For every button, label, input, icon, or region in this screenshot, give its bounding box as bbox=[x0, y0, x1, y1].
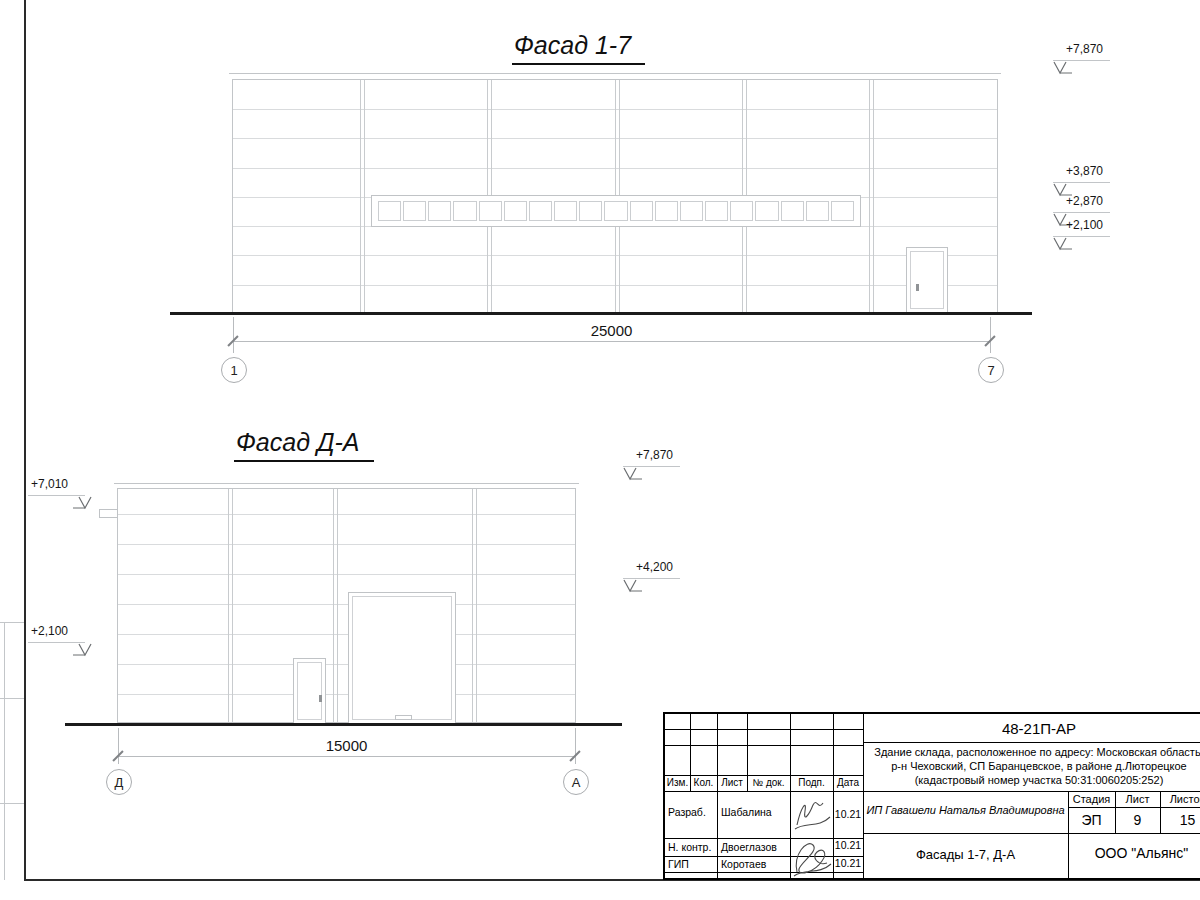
elevation-arrow-icon bbox=[72, 643, 92, 657]
sheet-frame-left bbox=[24, 0, 26, 881]
project-description-line3: (кадастровый номер участка 50:31:0060205… bbox=[863, 774, 1200, 786]
column-mullion bbox=[228, 489, 233, 722]
door-handle bbox=[319, 695, 322, 702]
sheet-label: Лист bbox=[1115, 793, 1160, 805]
panel-line bbox=[118, 604, 575, 605]
col-doc: № док. bbox=[747, 777, 790, 788]
window-pane bbox=[428, 201, 451, 221]
sheet-number: 9 bbox=[1115, 812, 1160, 828]
panel-line bbox=[118, 544, 575, 545]
dimension-line bbox=[233, 341, 990, 342]
column-mullion bbox=[472, 489, 477, 722]
window-band bbox=[371, 195, 861, 227]
row-role: Н. контр. bbox=[668, 841, 711, 853]
sheets-label: Листов bbox=[1160, 793, 1200, 805]
doc-number: 48-21П-АР bbox=[863, 720, 1200, 737]
row-name: Двоеглазов bbox=[721, 841, 777, 853]
window-pane bbox=[479, 201, 502, 221]
window-pane bbox=[705, 201, 728, 221]
row-date: 10.21 bbox=[833, 857, 863, 869]
window-pane bbox=[806, 201, 829, 221]
elevation-value: +7,010 bbox=[31, 477, 68, 491]
window-pane bbox=[453, 201, 476, 221]
stage-value: ЭП bbox=[1068, 812, 1115, 828]
window-pane bbox=[529, 201, 552, 221]
axis-label: Д bbox=[115, 775, 124, 790]
row-date: 10.21 bbox=[833, 808, 863, 820]
panel-line bbox=[118, 514, 575, 515]
column-mullion bbox=[360, 80, 365, 312]
column-mullion bbox=[869, 80, 874, 312]
panel-line bbox=[118, 574, 575, 575]
elevation-value: +7,870 bbox=[1066, 42, 1103, 56]
drawing-sheet: Фасад 1-7 25000 1 7 bbox=[0, 0, 1200, 900]
sheets-total: 15 bbox=[1160, 812, 1200, 828]
window-pane bbox=[504, 201, 527, 221]
dimension-value: 25000 bbox=[233, 322, 990, 339]
row-role: Разраб. bbox=[668, 806, 706, 818]
window-pane bbox=[403, 201, 426, 221]
gate-leaf bbox=[352, 596, 452, 720]
titleblock-line bbox=[863, 833, 1200, 834]
titleblock-line bbox=[665, 791, 1200, 792]
window-panes bbox=[378, 201, 854, 221]
signature-scribble bbox=[792, 795, 832, 835]
margin-cell-line bbox=[4, 622, 5, 880]
sheet-content-title: Фасады 1-7, Д-А bbox=[863, 847, 1068, 862]
axis-label: 1 bbox=[230, 363, 237, 378]
window-pane bbox=[680, 201, 703, 221]
titleblock-line bbox=[1068, 807, 1200, 808]
dimension-value: 15000 bbox=[118, 737, 575, 754]
panel-line bbox=[118, 694, 575, 695]
sectional-gate bbox=[348, 592, 456, 724]
titleblock-line bbox=[665, 729, 863, 730]
titleblock-line bbox=[665, 745, 863, 746]
col-list: Лист bbox=[717, 777, 747, 788]
elevation-value: +7,870 bbox=[636, 448, 673, 462]
elevation-value: +2,870 bbox=[1066, 194, 1103, 208]
elevation-arrow-icon bbox=[1053, 237, 1073, 251]
extension-line bbox=[575, 728, 576, 764]
client-name: ИП Гавашели Наталья Владимировна bbox=[863, 804, 1068, 816]
gate-threshold bbox=[395, 715, 412, 720]
panel-line bbox=[118, 634, 575, 635]
titleblock-line bbox=[665, 775, 863, 776]
col-data: Дата bbox=[833, 777, 863, 788]
elevation-value: +2,100 bbox=[1066, 218, 1103, 232]
window-pane bbox=[781, 201, 804, 221]
door-handle bbox=[916, 284, 919, 291]
elevation-value: +2,100 bbox=[31, 624, 68, 638]
door-leaf bbox=[297, 662, 322, 720]
project-description-line2: р-н Чеховский, СП Баранцевское, в районе… bbox=[863, 760, 1200, 772]
signature-scribble bbox=[790, 836, 834, 878]
parapet-cap-line bbox=[229, 73, 1001, 74]
elevation-value: +4,200 bbox=[636, 560, 673, 574]
window-pane bbox=[655, 201, 678, 221]
window-pane bbox=[554, 201, 577, 221]
row-date: 10.21 bbox=[833, 839, 863, 851]
row-name: Коротаев bbox=[721, 858, 766, 870]
company-name: ООО "Альянс" bbox=[1068, 845, 1200, 861]
axis-circle-a: А bbox=[563, 769, 589, 795]
entry-door bbox=[906, 247, 948, 313]
canopy-stub bbox=[99, 509, 118, 518]
window-pane bbox=[730, 201, 753, 221]
axis-label: 7 bbox=[987, 363, 994, 378]
axis-circle-7: 7 bbox=[978, 357, 1004, 383]
stage-label: Стадия bbox=[1068, 793, 1115, 805]
titleblock-line bbox=[717, 714, 718, 878]
door-leaf bbox=[910, 251, 944, 309]
panel-line bbox=[118, 664, 575, 665]
elevation-arrow-icon bbox=[72, 496, 92, 510]
elevation-arrow-icon bbox=[1053, 61, 1073, 75]
column-mullion bbox=[333, 489, 338, 722]
parapet-cap-line bbox=[114, 483, 579, 484]
row-role: ГИП bbox=[668, 858, 689, 870]
row-name: Шабалина bbox=[721, 806, 772, 818]
window-pane bbox=[630, 201, 653, 221]
elevation-arrow-icon bbox=[623, 467, 643, 481]
window-pane bbox=[604, 201, 627, 221]
facade-d-a-drawing bbox=[117, 488, 576, 723]
window-pane bbox=[755, 201, 778, 221]
col-podp: Подп. bbox=[790, 777, 833, 788]
dimension-line bbox=[118, 756, 575, 757]
ground-line bbox=[65, 723, 622, 726]
title-block: 48-21П-АР Здание склада, расположенное п… bbox=[663, 712, 1200, 880]
entry-door bbox=[293, 658, 326, 724]
col-kol: Кол. bbox=[690, 777, 717, 788]
window-pane bbox=[831, 201, 854, 221]
facade-1-7-drawing bbox=[232, 79, 998, 313]
project-description-line1: Здание склада, расположенное по адресу: … bbox=[863, 746, 1200, 758]
axis-circle-d: Д bbox=[106, 769, 132, 795]
elevation-value: +3,870 bbox=[1066, 164, 1103, 178]
titleblock-line bbox=[863, 742, 1200, 743]
col-izm: Изм. bbox=[665, 777, 690, 788]
axis-circle-1: 1 bbox=[221, 357, 247, 383]
ground-line bbox=[170, 312, 1032, 315]
extension-line bbox=[990, 317, 991, 353]
window-pane bbox=[378, 201, 401, 221]
facade-d-a-title: Фасад Д-А bbox=[234, 428, 374, 462]
window-pane bbox=[579, 201, 602, 221]
facade-1-7-title: Фасад 1-7 bbox=[512, 31, 645, 65]
axis-label: А bbox=[572, 775, 581, 790]
elevation-arrow-icon bbox=[623, 579, 643, 593]
